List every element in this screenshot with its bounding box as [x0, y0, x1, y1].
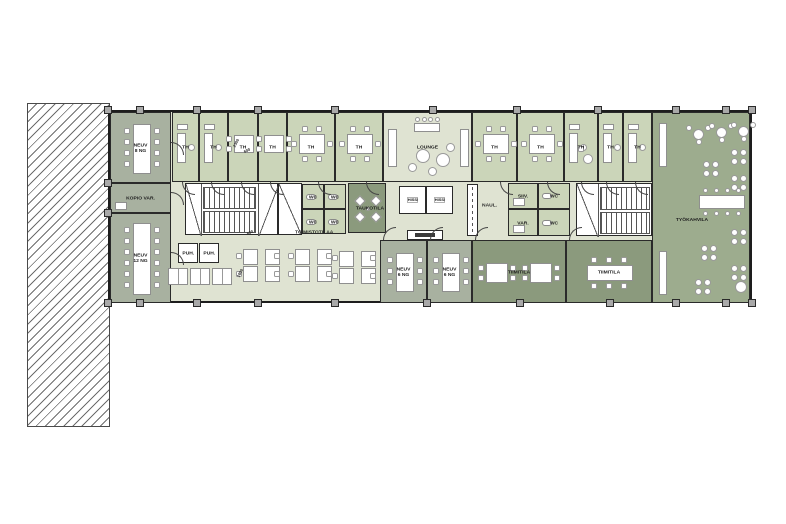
room-th-8: TH [517, 112, 564, 182]
desk-chair [614, 144, 621, 151]
chair [695, 279, 702, 286]
shelf [603, 124, 614, 130]
chair [417, 279, 423, 285]
chair [124, 227, 130, 233]
desk [243, 249, 258, 265]
floor-plan: NEUV 8 NGKOPIO VAR.NEUV 12 NGTHTHTHTHTHT… [0, 0, 786, 524]
chair [154, 282, 160, 288]
desk-cluster [236, 249, 280, 283]
high-table [414, 123, 440, 132]
chair [316, 156, 322, 162]
room-th-7: TH [472, 112, 517, 182]
chair [433, 279, 439, 285]
chair [236, 253, 242, 259]
chair [740, 229, 747, 236]
chair [532, 156, 538, 162]
facade-column [513, 106, 521, 114]
desk [204, 133, 213, 163]
desk [295, 266, 310, 282]
chair [740, 175, 747, 182]
chair [339, 141, 345, 147]
chair [731, 274, 738, 281]
chair [686, 125, 692, 131]
meeting-table [396, 253, 414, 292]
chair [375, 141, 381, 147]
door-arc [569, 227, 582, 240]
room-hissi-2: HISSI [426, 186, 453, 214]
facade-column [331, 106, 339, 114]
room-neuv-6b: NEUV 6 NG [427, 240, 472, 303]
armchair [446, 143, 455, 152]
room-kopio-var: KOPIO VAR. [110, 183, 171, 213]
meeting-table [442, 253, 460, 292]
chair [521, 141, 527, 147]
room-label-puh-2: PUH. [203, 250, 214, 256]
facade-column [423, 299, 431, 307]
chair [740, 238, 747, 245]
chair [417, 257, 423, 263]
chair [288, 253, 294, 259]
chair [731, 175, 738, 182]
break-table [354, 195, 365, 206]
chair [350, 156, 356, 162]
toilet [306, 219, 316, 225]
chair [154, 271, 160, 277]
chair [154, 161, 160, 167]
stool [703, 188, 708, 193]
chair [478, 265, 484, 271]
chair [463, 279, 469, 285]
chair [364, 126, 370, 132]
chair [124, 282, 130, 288]
chair [433, 257, 439, 263]
locker-unit [168, 268, 188, 285]
chair [486, 126, 492, 132]
work-table [299, 134, 325, 154]
annotation-toimistotilaa: TOIMISTOTILAA [295, 229, 333, 235]
chair [578, 146, 584, 152]
chair [370, 255, 376, 261]
facade-column [104, 179, 112, 187]
chair [124, 271, 130, 277]
stool [714, 211, 719, 216]
chair [740, 149, 747, 156]
stool [415, 117, 420, 122]
desk [295, 249, 310, 265]
stair-flight [600, 212, 650, 235]
room-label-kopio-var: KOPIO VAR. [122, 195, 159, 201]
locker-divider [200, 269, 201, 284]
facade-column [606, 299, 614, 307]
chair [124, 161, 130, 167]
stool [422, 117, 427, 122]
room-lounge: LOUNGE [383, 112, 472, 182]
chair [500, 126, 506, 132]
chair [256, 136, 262, 142]
chair [332, 273, 338, 279]
facade-column [672, 299, 680, 307]
room-label-hissi-2: HISSI [435, 198, 445, 203]
work-table [347, 134, 373, 154]
door-arc [171, 192, 184, 205]
room-th-4: TH [258, 112, 287, 182]
round-table [416, 149, 430, 163]
chair [124, 150, 130, 156]
stool [714, 188, 719, 193]
chair [350, 126, 356, 132]
break-table [354, 211, 365, 222]
chair [510, 265, 516, 271]
chair [478, 275, 484, 281]
facade-column [594, 106, 602, 114]
door-arc [430, 227, 443, 240]
chair [154, 249, 160, 255]
chair [302, 156, 308, 162]
facade-column [104, 299, 112, 307]
chair [387, 268, 393, 274]
chair [226, 136, 232, 142]
desk-cluster [288, 249, 332, 283]
room-neuv-6a: NEUV 6 NG [380, 240, 427, 303]
chair [124, 139, 130, 145]
room-th-2: TH [199, 112, 228, 182]
table-center [366, 207, 370, 211]
annotation-600: 600 [246, 229, 254, 236]
chair [557, 141, 563, 147]
chair [731, 122, 737, 128]
chair [475, 141, 481, 147]
room-label-tyokahvila: TYÖKAHVILA [672, 217, 713, 223]
chair [710, 254, 717, 261]
chair [124, 238, 130, 244]
desk [628, 133, 637, 163]
chair [731, 149, 738, 156]
chair [154, 139, 160, 145]
facade-column [136, 106, 144, 114]
chair [291, 141, 297, 147]
chair [274, 271, 280, 277]
room-stairs-west [185, 183, 278, 235]
chair [731, 265, 738, 272]
chair [417, 268, 423, 274]
facade-column [722, 299, 730, 307]
locker-divider [178, 269, 179, 284]
chair [591, 283, 597, 289]
desk [243, 266, 258, 282]
facade-column [254, 106, 262, 114]
shelf [628, 124, 639, 130]
plan-layer: NEUV 8 NGKOPIO VAR.NEUV 12 NGTHTHTHTHTHT… [0, 0, 786, 524]
facade-column [722, 106, 730, 114]
cafe-long-table [699, 195, 745, 209]
chair [486, 156, 492, 162]
chair [332, 255, 338, 261]
chair [387, 279, 393, 285]
facade-column [104, 106, 112, 114]
desk [339, 268, 354, 284]
stool [725, 211, 730, 216]
facade-column [254, 299, 262, 307]
cabinet [513, 198, 525, 206]
stool [703, 211, 708, 216]
chair [606, 283, 612, 289]
team-table [587, 265, 633, 281]
chair [606, 257, 612, 263]
facade-column [748, 106, 756, 114]
room-label-puh-1: PUH. [182, 250, 193, 256]
cabinet [115, 202, 127, 210]
chair [546, 156, 552, 162]
door-arc [182, 182, 195, 195]
locker-unit [212, 268, 232, 285]
chair [554, 275, 560, 281]
shelf [177, 124, 188, 130]
chair [740, 184, 747, 191]
door-arc [500, 182, 513, 195]
shelf [569, 124, 580, 130]
chair [510, 275, 516, 281]
chair [731, 158, 738, 165]
room-th-11: TH [623, 112, 652, 182]
armchair [408, 163, 417, 172]
chair [703, 161, 710, 168]
facade-column [516, 299, 524, 307]
room-tiimitila-2: TIIMITILA [566, 240, 652, 303]
desk [339, 251, 354, 267]
chair [387, 257, 393, 263]
work-table [264, 135, 284, 153]
desk-chair [215, 144, 222, 151]
chair [124, 128, 130, 134]
chair [709, 123, 715, 129]
toilet [306, 194, 316, 200]
toilet [542, 193, 552, 199]
chair [154, 150, 160, 156]
room-tyokahvila: TYÖKAHVILA [652, 112, 750, 303]
chair [522, 265, 528, 271]
chair [750, 122, 756, 128]
room-tiimitila-1: TIIMITILA [472, 240, 566, 303]
facade-column [136, 299, 144, 307]
stool [428, 117, 433, 122]
chair [364, 156, 370, 162]
chair [710, 245, 717, 252]
chair [712, 161, 719, 168]
chair [532, 126, 538, 132]
break-table [370, 211, 381, 222]
stool [725, 188, 730, 193]
stool [736, 188, 741, 193]
locker-unit [190, 268, 210, 285]
room-th-6: TH [335, 112, 383, 182]
room-th-10: TH [598, 112, 623, 182]
chair [124, 249, 130, 255]
armchair [428, 167, 437, 176]
chair [621, 283, 627, 289]
chair [154, 227, 160, 233]
desk [603, 133, 612, 163]
desk-cluster [332, 251, 376, 285]
shelf [204, 124, 215, 130]
room-neuv-12: NEUV 12 NG [110, 213, 171, 303]
room-wc-6: WC [538, 209, 570, 236]
chair [704, 279, 711, 286]
chair [124, 260, 130, 266]
chair [511, 141, 517, 147]
cabinet [513, 225, 525, 233]
chair [741, 136, 747, 142]
sofa [659, 251, 667, 295]
facade-column [429, 106, 437, 114]
facade-column [193, 299, 201, 307]
facade-column [193, 106, 201, 114]
chair [274, 253, 280, 259]
chair [370, 273, 376, 279]
team-table [486, 263, 508, 283]
facade-column [672, 106, 680, 114]
chair [463, 268, 469, 274]
room-th-3: TH [228, 112, 258, 182]
meeting-table [133, 223, 151, 295]
room-neuv-8: NEUV 8 NG [110, 112, 171, 183]
desk [569, 133, 578, 163]
meeting-table [133, 124, 151, 174]
sofa [460, 129, 469, 167]
toilet [328, 219, 338, 225]
annotation-naul-: NAUL. [482, 202, 497, 208]
chair [591, 257, 597, 263]
chair [500, 156, 506, 162]
facade-column [104, 209, 112, 217]
chair [731, 238, 738, 245]
chair [546, 126, 552, 132]
chair [522, 275, 528, 281]
chair [740, 158, 747, 165]
chair [701, 245, 708, 252]
side-table [583, 154, 593, 164]
chair [154, 260, 160, 266]
chair [226, 146, 232, 152]
chair [316, 126, 322, 132]
room-naulakko-rack [467, 184, 478, 236]
desk-chair [188, 144, 195, 151]
chair [695, 288, 702, 295]
rack-line [472, 187, 473, 233]
chair [288, 271, 294, 277]
chair [554, 265, 560, 271]
chair [621, 257, 627, 263]
room-var: VAR. [508, 209, 538, 236]
room-taukotila: TAUKOTILA [348, 183, 386, 233]
chair [696, 139, 702, 145]
chair [154, 238, 160, 244]
locker-divider [222, 269, 223, 284]
stool [435, 117, 440, 122]
chair [463, 257, 469, 263]
chair [286, 146, 292, 152]
stool [736, 211, 741, 216]
team-table [530, 263, 552, 283]
room-hissi-1: HISSI [399, 186, 426, 214]
chair [712, 170, 719, 177]
chair [703, 170, 710, 177]
chair [701, 254, 708, 261]
chair [704, 288, 711, 295]
sofa [388, 129, 397, 167]
chair [719, 137, 725, 143]
lounge-chair [735, 281, 747, 293]
chair [740, 274, 747, 281]
chair [731, 229, 738, 236]
facade-column [331, 299, 339, 307]
round-table [436, 153, 450, 167]
chair [327, 141, 333, 147]
sofa [659, 123, 667, 167]
room-puh-2: PUH. [199, 243, 219, 263]
toilet [542, 220, 552, 226]
chair [740, 265, 747, 272]
break-table [370, 195, 381, 206]
chair [433, 268, 439, 274]
facade-column [748, 299, 756, 307]
room-th-5: TH [287, 112, 335, 182]
room-th-9: TH [564, 112, 598, 182]
room-label-hissi-1: HISSI [408, 198, 418, 203]
work-table [483, 134, 509, 154]
chair [154, 128, 160, 134]
chair [256, 146, 262, 152]
work-table [529, 134, 555, 154]
chair [302, 126, 308, 132]
desk-chair [639, 144, 646, 151]
